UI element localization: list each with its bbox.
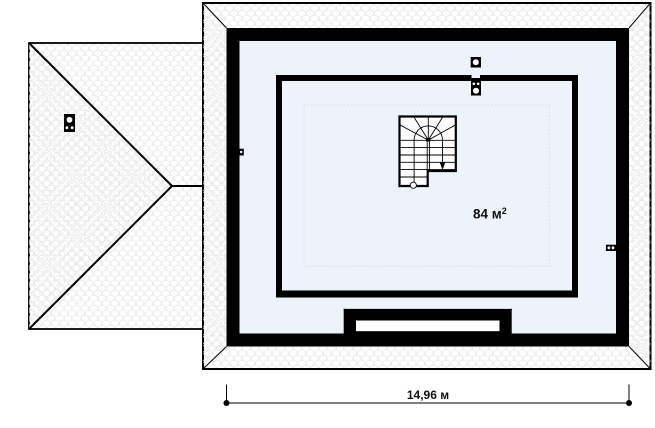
svg-text:14,96 м: 14,96 м <box>407 388 449 402</box>
svg-text:84 м2: 84 м2 <box>473 206 507 222</box>
